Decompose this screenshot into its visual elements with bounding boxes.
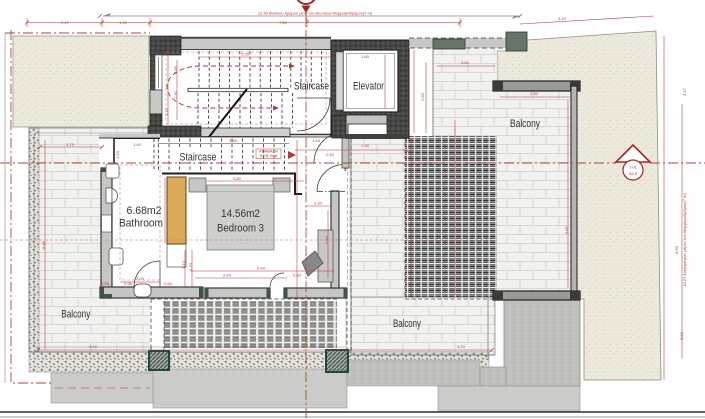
svg-text:5 ΥΒ Η=6: 5 ΥΒ Η=6 <box>260 153 278 158</box>
svg-text:3.60: 3.60 <box>461 60 470 65</box>
svg-text:6.40: 6.40 <box>257 266 266 271</box>
svg-text:3.17: 3.17 <box>682 87 687 96</box>
svg-text:3.00: 3.00 <box>229 138 238 143</box>
svg-text:Staircase: Staircase <box>294 81 329 93</box>
svg-text:3.80: 3.80 <box>233 176 242 181</box>
svg-text:2.30: 2.30 <box>530 91 539 96</box>
svg-text:1.50: 1.50 <box>361 143 370 148</box>
svg-text:2.60: 2.60 <box>324 235 329 244</box>
svg-text:1.93: 1.93 <box>115 150 120 159</box>
svg-text:Staircase: Staircase <box>180 152 217 164</box>
svg-text:Balcony: Balcony <box>510 118 540 130</box>
svg-text:0.40: 0.40 <box>326 152 335 157</box>
svg-text:1.30: 1.30 <box>314 201 323 206</box>
svg-text:6.30: 6.30 <box>406 148 415 153</box>
svg-text:1.73: 1.73 <box>66 142 75 147</box>
svg-text:6.90: 6.90 <box>679 331 684 340</box>
svg-text:0.56: 0.56 <box>124 281 133 286</box>
svg-text:2.50: 2.50 <box>420 92 425 101</box>
svg-text:0.50: 0.50 <box>293 273 302 278</box>
svg-text:2.40: 2.40 <box>223 273 232 278</box>
svg-text:A2.8: A2.8 <box>629 171 638 176</box>
svg-text:7.50: 7.50 <box>279 20 288 25</box>
svg-text:1.40: 1.40 <box>119 20 128 25</box>
svg-text:3.15: 3.15 <box>89 344 98 349</box>
svg-text:Balcony: Balcony <box>393 318 421 330</box>
svg-text:1.40: 1.40 <box>133 142 142 147</box>
svg-text:4.45: 4.45 <box>239 344 248 349</box>
svg-text:T.01: T.01 <box>629 165 637 170</box>
svg-text:1.20: 1.20 <box>188 262 193 271</box>
svg-text:Balcony: Balcony <box>61 309 90 321</box>
svg-text:1.15: 1.15 <box>164 107 169 116</box>
svg-text:10.27 Ανεξαρτήτως μέρος του Μα: 10.27 Ανεξαρτήτως μέρος του Μαρμαροδρόμο… <box>682 193 687 287</box>
svg-text:Bathroom: Bathroom <box>119 218 163 230</box>
svg-text:2.17: 2.17 <box>61 20 70 25</box>
svg-text:0.50: 0.50 <box>164 281 173 286</box>
svg-text:1.10: 1.10 <box>181 260 186 269</box>
svg-text:1.15: 1.15 <box>312 138 321 143</box>
svg-text:14.56m2: 14.56m2 <box>221 208 260 220</box>
svg-text:0.85: 0.85 <box>173 65 178 74</box>
svg-text:3.40: 3.40 <box>558 16 567 21</box>
svg-text:12.30 Βιοτικού δρόμου μετά του: 12.30 Βιοτικού δρόμου μετά του ιδιωτικού… <box>258 11 373 16</box>
svg-text:6.40: 6.40 <box>41 240 46 249</box>
svg-text:4.23: 4.23 <box>457 344 466 349</box>
svg-text:Elevator: Elevator <box>353 81 384 93</box>
svg-text:2.30: 2.30 <box>173 90 178 99</box>
svg-text:9.87: 9.87 <box>564 225 569 234</box>
svg-text:1.60: 1.60 <box>361 54 370 59</box>
svg-text:0.55: 0.55 <box>101 281 110 286</box>
svg-text:Bedroom 3: Bedroom 3 <box>217 223 264 235</box>
svg-text:6.68m2: 6.68m2 <box>127 205 162 217</box>
svg-text:6.60: 6.60 <box>674 245 679 254</box>
